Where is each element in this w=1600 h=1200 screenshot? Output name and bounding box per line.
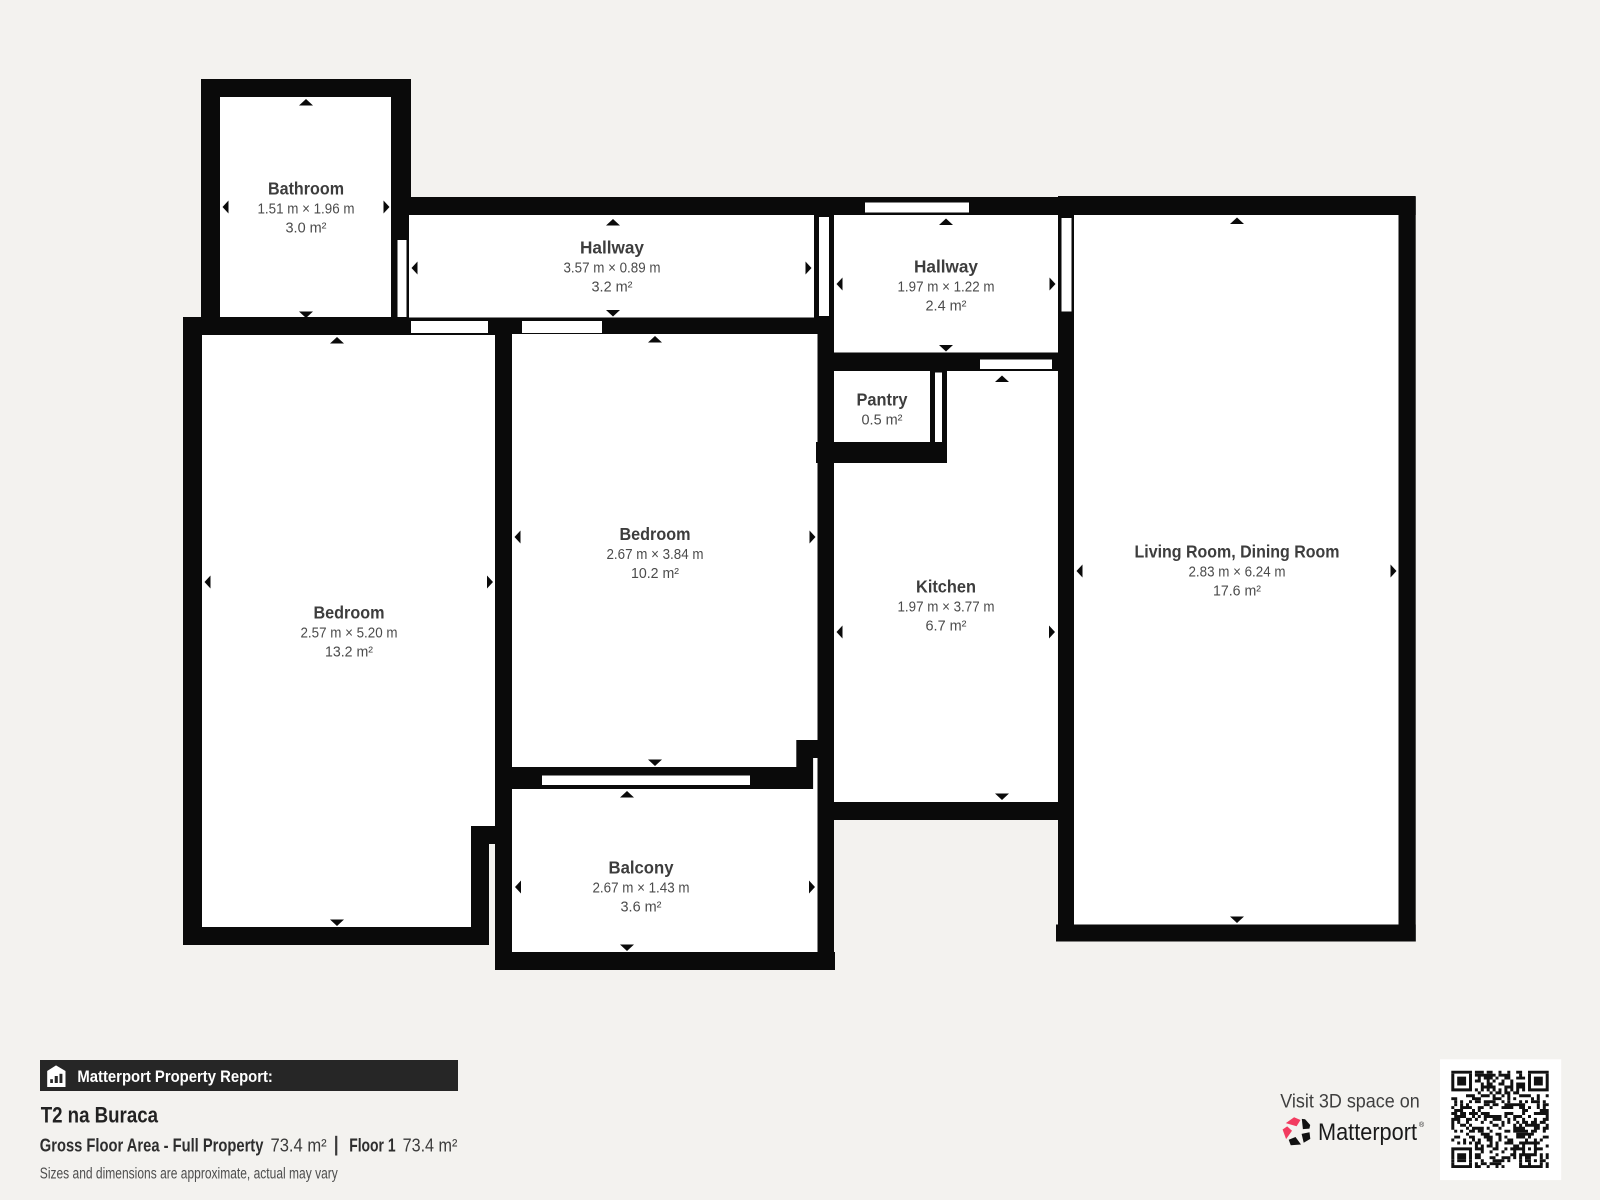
svg-text:Floor 1: Floor 1 bbox=[349, 1135, 395, 1155]
svg-text:Bathroom: Bathroom bbox=[268, 179, 344, 199]
svg-text:2.57 m × 5.20 m: 2.57 m × 5.20 m bbox=[301, 626, 398, 642]
svg-text:13.2 m²: 13.2 m² bbox=[325, 645, 373, 661]
svg-text:Balcony: Balcony bbox=[609, 858, 674, 878]
svg-text:Gross Floor Area - Full Proper: Gross Floor Area - Full Property bbox=[40, 1135, 264, 1155]
svg-text:®: ® bbox=[1419, 1121, 1425, 1129]
svg-text:T2 na Buraca: T2 na Buraca bbox=[41, 1103, 159, 1128]
svg-text:3.57 m × 0.89 m: 3.57 m × 0.89 m bbox=[564, 261, 661, 277]
svg-text:Kitchen: Kitchen bbox=[916, 577, 976, 597]
svg-text:1.97 m × 3.77 m: 1.97 m × 3.77 m bbox=[898, 600, 995, 616]
svg-text:73.4 m²: 73.4 m² bbox=[403, 1135, 458, 1155]
svg-text:17.6 m²: 17.6 m² bbox=[1213, 584, 1261, 600]
svg-text:Matterport: Matterport bbox=[1318, 1119, 1417, 1146]
svg-text:Matterport Property Report:: Matterport Property Report: bbox=[77, 1067, 273, 1086]
svg-text:Hallway: Hallway bbox=[580, 238, 644, 258]
svg-text:3.6 m²: 3.6 m² bbox=[621, 900, 662, 916]
svg-text:6.7 m²: 6.7 m² bbox=[926, 619, 967, 635]
svg-text:3.2 m²: 3.2 m² bbox=[592, 280, 633, 296]
svg-text:10.2 m²: 10.2 m² bbox=[631, 566, 679, 582]
svg-text:Bedroom: Bedroom bbox=[620, 524, 691, 544]
svg-text:2.83 m × 6.24 m: 2.83 m × 6.24 m bbox=[1189, 565, 1286, 581]
svg-text:1.51 m × 1.96 m: 1.51 m × 1.96 m bbox=[258, 202, 355, 218]
svg-text:Bedroom: Bedroom bbox=[314, 603, 385, 623]
svg-text:Pantry: Pantry bbox=[857, 390, 908, 410]
svg-text:Hallway: Hallway bbox=[914, 257, 978, 277]
svg-text:2.67 m × 1.43 m: 2.67 m × 1.43 m bbox=[593, 881, 690, 897]
svg-text:3.0 m²: 3.0 m² bbox=[286, 221, 327, 237]
svg-text:2.67 m × 3.84 m: 2.67 m × 3.84 m bbox=[607, 547, 704, 563]
svg-text:Sizes and dimensions are appro: Sizes and dimensions are approximate, ac… bbox=[40, 1166, 338, 1183]
svg-text:2.4 m²: 2.4 m² bbox=[926, 299, 967, 315]
svg-text:1.97 m × 1.22 m: 1.97 m × 1.22 m bbox=[898, 280, 995, 296]
svg-text:Visit 3D space on: Visit 3D space on bbox=[1280, 1090, 1420, 1112]
svg-text:0.5 m²: 0.5 m² bbox=[862, 413, 903, 429]
svg-text:73.4 m²: 73.4 m² bbox=[271, 1135, 327, 1155]
svg-text:Living Room, Dining Room: Living Room, Dining Room bbox=[1135, 542, 1340, 562]
